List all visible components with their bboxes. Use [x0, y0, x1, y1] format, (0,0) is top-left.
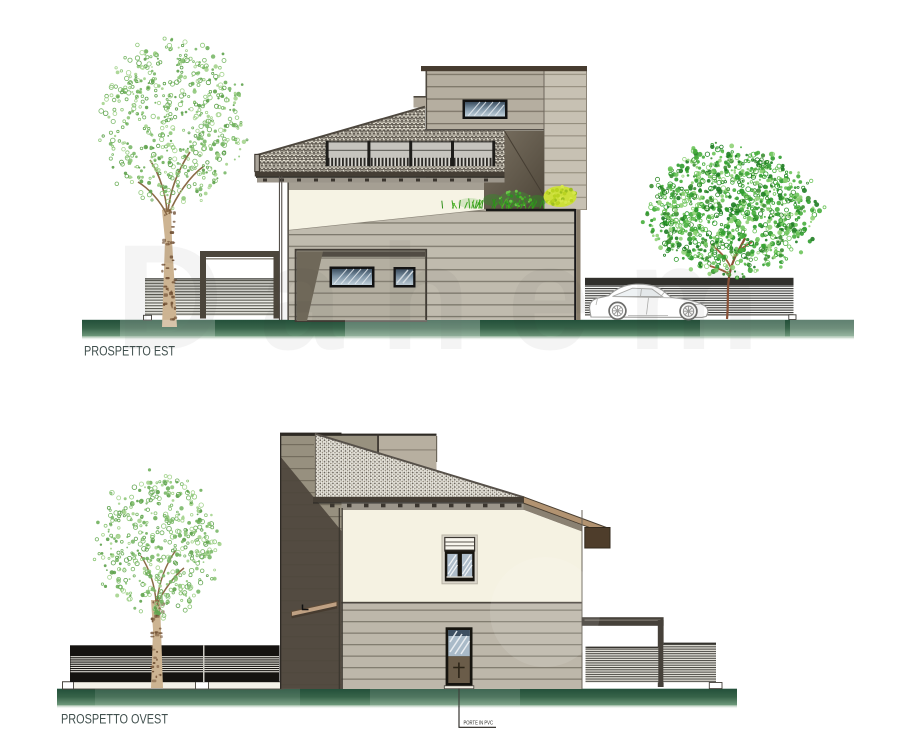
svg-text:PROSPETTO OVEST: PROSPETTO OVEST [61, 712, 168, 727]
svg-text:PORTE IN PVC: PORTE IN PVC [464, 721, 494, 727]
svg-text:Dahem: Dahem [115, 213, 760, 381]
